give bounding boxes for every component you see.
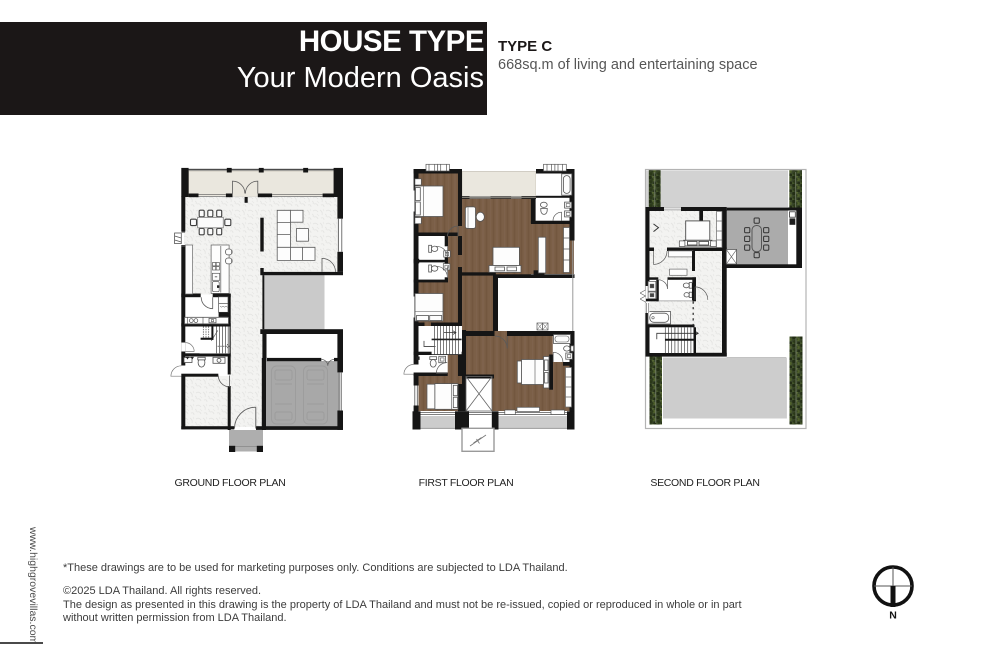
svg-text:N: N xyxy=(889,610,897,622)
